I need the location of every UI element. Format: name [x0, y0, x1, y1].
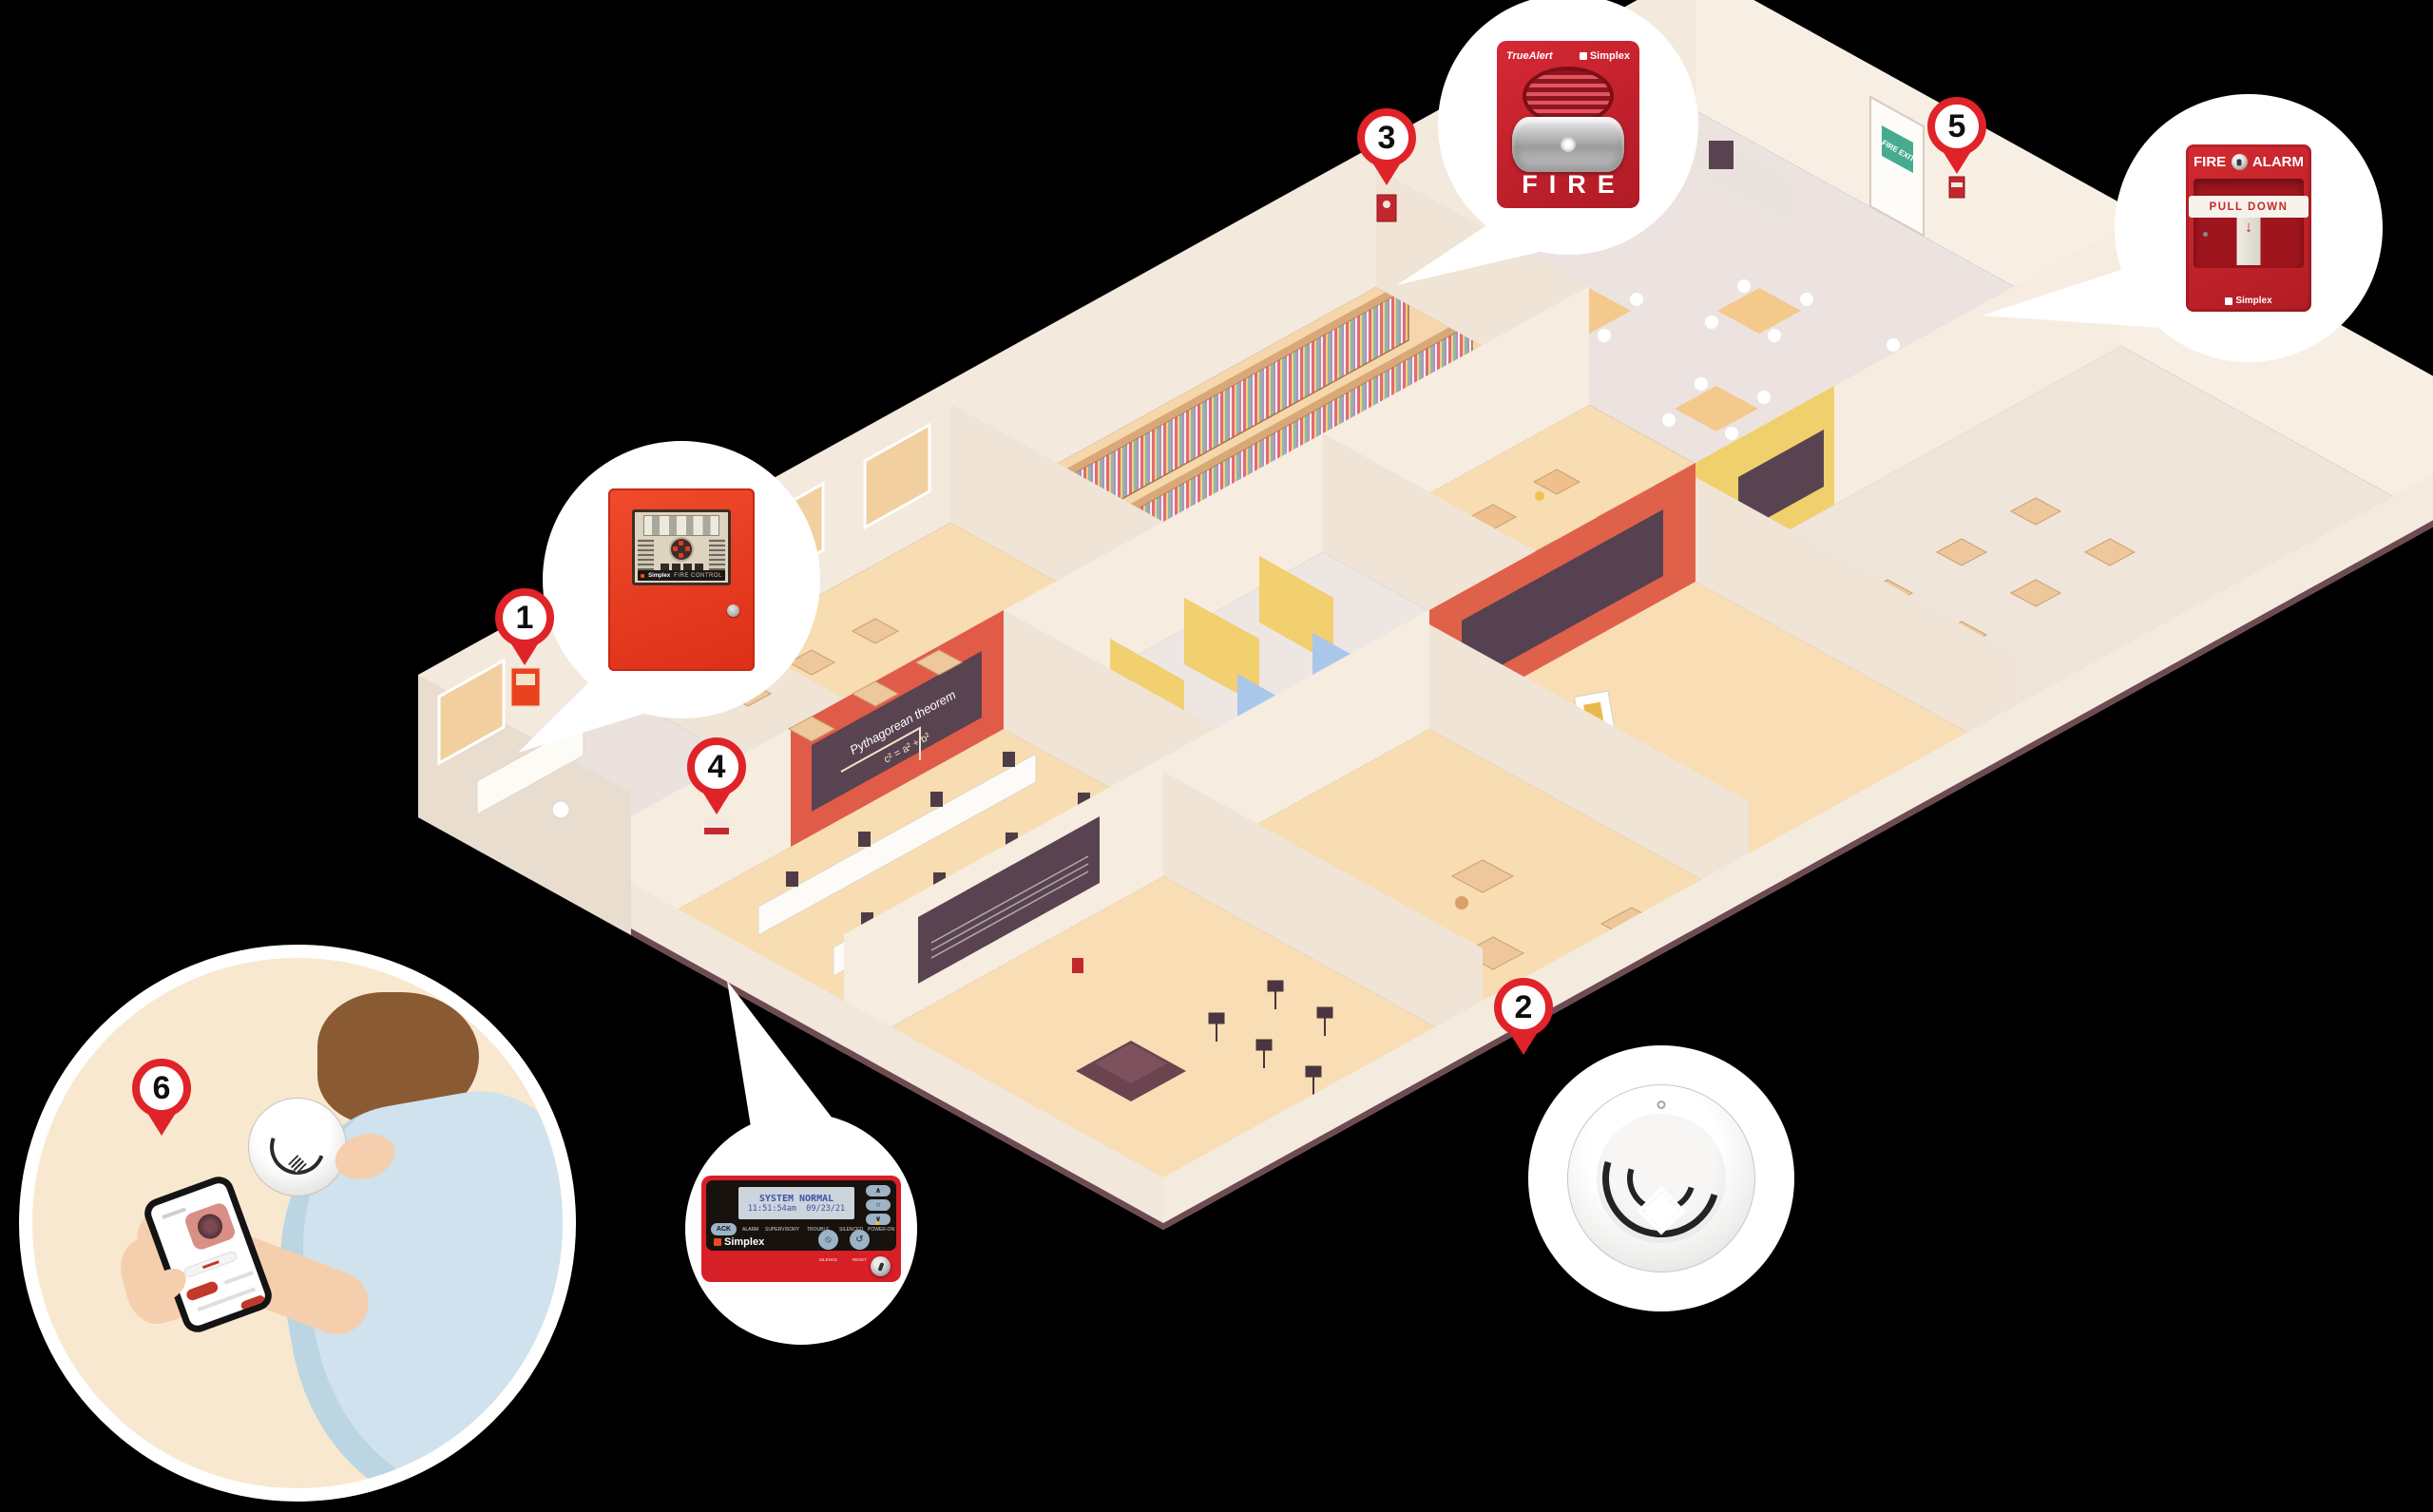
pull-handle-stem: ↓ — [2237, 218, 2261, 265]
pull-word-alarm: ALARM — [2252, 154, 2304, 170]
annunciator-lcd: SYSTEM NORMAL 11:51:54am 09/23/21 — [738, 1187, 854, 1219]
app-title-bar — [162, 1207, 186, 1219]
app-detector-photo — [183, 1201, 238, 1252]
ack-button: ACK — [711, 1223, 737, 1235]
pull-keyhole-icon — [2232, 154, 2248, 170]
silence-button-label: SILENCE — [819, 1250, 837, 1270]
truealert-brand: TrueAlert — [1506, 50, 1553, 62]
reset-button: ↺RESET — [850, 1230, 870, 1250]
marker-number: 3 — [1357, 108, 1416, 167]
pull-led-icon — [2203, 232, 2208, 237]
pin-tail-icon — [147, 1113, 176, 1136]
technician-scene — [32, 958, 563, 1488]
panel-label: FIRE CONTROL — [674, 573, 722, 579]
panel-brand: Simplex — [648, 573, 670, 579]
callout-technician-app — [19, 945, 576, 1502]
marker-number: 1 — [495, 588, 554, 647]
simplex-logo-icon — [641, 574, 644, 578]
strobe-light — [1512, 117, 1624, 172]
indicator-column-left — [638, 539, 654, 573]
wall-alarm-music-room — [1072, 958, 1083, 973]
pin-tail-icon — [1943, 151, 1971, 174]
down-arrow-icon: ↓ — [2245, 218, 2253, 236]
callout-control-panel: Simplex FIRE CONTROL — [543, 441, 820, 718]
marker-pin-3: 3 — [1354, 108, 1419, 185]
fire-alarm-control-panel: Simplex FIRE CONTROL — [608, 488, 755, 671]
fire-horn-strobe: TrueAlert Simplex FIRE — [1497, 41, 1639, 208]
marker-number: 5 — [1927, 97, 1986, 156]
control-panel-lcd — [643, 515, 719, 536]
power-led-icon — [875, 1221, 879, 1225]
detector-led-icon — [1657, 1101, 1666, 1109]
callout-pull-station: FIRE ALARM PULL DOWN ↓ Simplex — [2115, 94, 2383, 362]
dpad-buttons — [671, 539, 692, 560]
control-panel-interface: Simplex FIRE CONTROL — [632, 509, 731, 585]
marker-number: 2 — [1494, 978, 1553, 1037]
nav-select-icon: ○ — [866, 1199, 891, 1211]
app-status-pill — [183, 1250, 239, 1278]
remote-annunciator: SYSTEM NORMAL 11:51:54am 09/23/21 ∧ ○ ∨ … — [701, 1176, 901, 1282]
pull-word-fire: FIRE — [2194, 154, 2226, 170]
simplex-logo-icon — [714, 1238, 721, 1246]
indicator-column-right — [709, 539, 725, 573]
manual-pull-station: FIRE ALARM PULL DOWN ↓ Simplex — [2186, 144, 2311, 312]
reset-button-label: RESET — [853, 1250, 867, 1270]
app-text-line — [224, 1271, 254, 1285]
status-label-power-on: POWER-ON — [868, 1227, 894, 1233]
wall-annunciator — [704, 819, 729, 828]
app-red-button — [185, 1280, 220, 1302]
app-red-button — [239, 1294, 266, 1311]
simplex-logo-icon — [1580, 52, 1587, 60]
pin-tail-icon — [510, 642, 539, 665]
pull-station-recess: PULL DOWN ↓ — [2194, 179, 2304, 268]
marker-pin-6: 6 — [129, 1059, 194, 1136]
nav-buttons: ∧ ○ ∨ — [866, 1185, 891, 1225]
pull-handle: PULL DOWN — [2189, 196, 2308, 218]
horn-fire-label: FIRE — [1497, 170, 1639, 200]
smoke-detector — [1567, 1084, 1755, 1273]
annunciator-keyhole-icon — [871, 1256, 891, 1276]
pin-tail-icon — [702, 792, 731, 814]
horn-brand: Simplex — [1590, 50, 1630, 62]
lcd-datetime-line: 11:51:54am 09/23/21 — [748, 1204, 845, 1214]
marker-number: 4 — [687, 737, 746, 796]
annunciator-brand: Simplex — [724, 1236, 764, 1248]
marker-pin-2: 2 — [1491, 978, 1556, 1055]
office-chair — [552, 801, 569, 818]
status-label-alarm: ALARM — [742, 1227, 758, 1233]
callout-smoke-detector — [1528, 1045, 1794, 1311]
callout-horn-strobe: TrueAlert Simplex FIRE — [1438, 0, 1698, 255]
lcd-status-line: SYSTEM NORMAL — [759, 1194, 833, 1204]
silence-button: ⦸SILENCE — [818, 1230, 838, 1250]
marker-pin-4: 4 — [684, 737, 749, 814]
callout-annunciator: SYSTEM NORMAL 11:51:54am 09/23/21 ∧ ○ ∨ … — [685, 1113, 917, 1345]
pin-tail-icon — [1372, 163, 1401, 185]
pull-brand: Simplex — [2235, 296, 2271, 306]
simplex-logo-icon — [2225, 297, 2232, 305]
marker-pin-5: 5 — [1925, 97, 1989, 174]
marker-pin-1: 1 — [492, 588, 557, 665]
cabinet-keyhole-icon — [727, 604, 739, 617]
fire-alarm-infographic: FIRE EXIT — [0, 0, 2433, 1512]
status-label-supervisory: SUPERVISORY — [765, 1227, 799, 1233]
pin-tail-icon — [1509, 1032, 1538, 1055]
marker-number: 6 — [132, 1059, 191, 1118]
keypad — [661, 564, 669, 570]
handheld-smoke-detector — [248, 1098, 347, 1196]
nav-up-icon: ∧ — [866, 1185, 891, 1196]
